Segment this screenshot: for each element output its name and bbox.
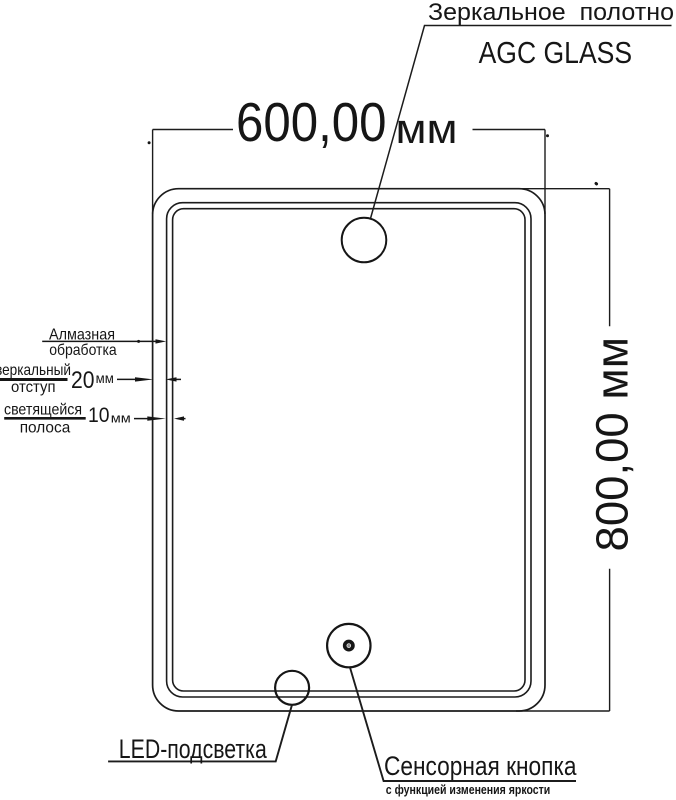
svg-text:Алмазная: Алмазная: [49, 326, 115, 343]
svg-text:зеркальный: зеркальный: [0, 362, 71, 379]
svg-text:LED-подсветка: LED-подсветка: [119, 734, 268, 764]
svg-text:светящейся: светящейся: [4, 402, 82, 419]
svg-text:мм: мм: [96, 371, 114, 386]
svg-text:с функцией изменения яркости: с функцией изменения яркости: [386, 783, 551, 797]
svg-text:обработка: обработка: [49, 342, 117, 359]
svg-text:мм: мм: [111, 412, 131, 426]
svg-text:мм: мм: [396, 105, 458, 152]
svg-text:800,00 мм: 800,00 мм: [587, 337, 638, 552]
svg-text:AGC GLASS: AGC GLASS: [479, 35, 632, 70]
svg-text:Зеркальное полотно: Зеркальное полотно: [428, 0, 674, 26]
svg-text:отступ: отступ: [11, 379, 56, 396]
svg-text:10: 10: [88, 403, 110, 427]
svg-text:600,00: 600,00: [236, 92, 387, 153]
svg-text:полоса: полоса: [20, 419, 71, 436]
svg-text:20: 20: [71, 367, 95, 394]
svg-text:Сенсорная кнопка: Сенсорная кнопка: [384, 751, 577, 781]
